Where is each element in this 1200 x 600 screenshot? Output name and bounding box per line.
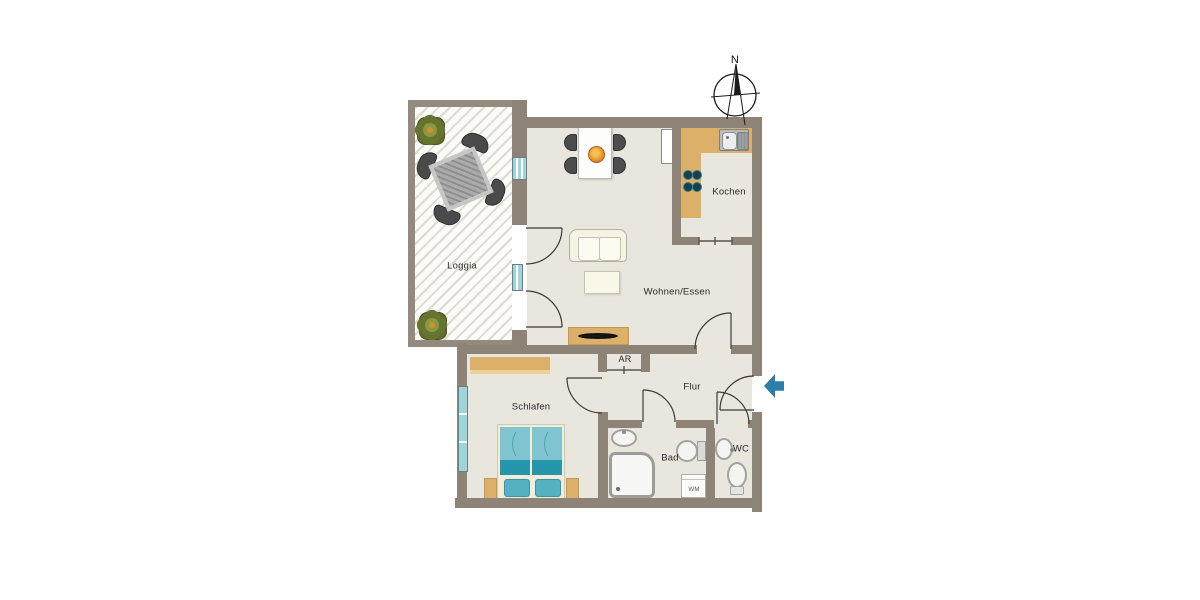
room-label-wohnen: Wohnen/Essen <box>644 287 711 298</box>
floorplan-canvas: WM <box>0 0 1200 600</box>
living-room-door-icon <box>695 313 731 349</box>
compass-north-label: N <box>731 54 739 66</box>
compass-icon <box>711 64 760 125</box>
wc-door-icon <box>717 392 749 424</box>
room-label-schlafen: Schlafen <box>512 402 551 413</box>
kitchen-opening-icon <box>699 237 732 245</box>
room-label-flur: Flur <box>683 382 700 393</box>
storage-door-icon <box>607 366 641 374</box>
room-label-ar: AR <box>619 354 632 364</box>
door-and-symbol-layer <box>0 0 1200 600</box>
balcony-door-icon <box>526 228 562 327</box>
room-label-bad: Bad <box>661 453 679 464</box>
room-label-wc: WC <box>733 444 749 455</box>
bed-fold-lines <box>513 432 549 456</box>
room-label-kochen: Kochen <box>712 187 745 198</box>
bedroom-door-icon <box>567 378 602 413</box>
bathroom-door-icon <box>643 390 675 422</box>
room-label-loggia: Loggia <box>447 261 477 272</box>
